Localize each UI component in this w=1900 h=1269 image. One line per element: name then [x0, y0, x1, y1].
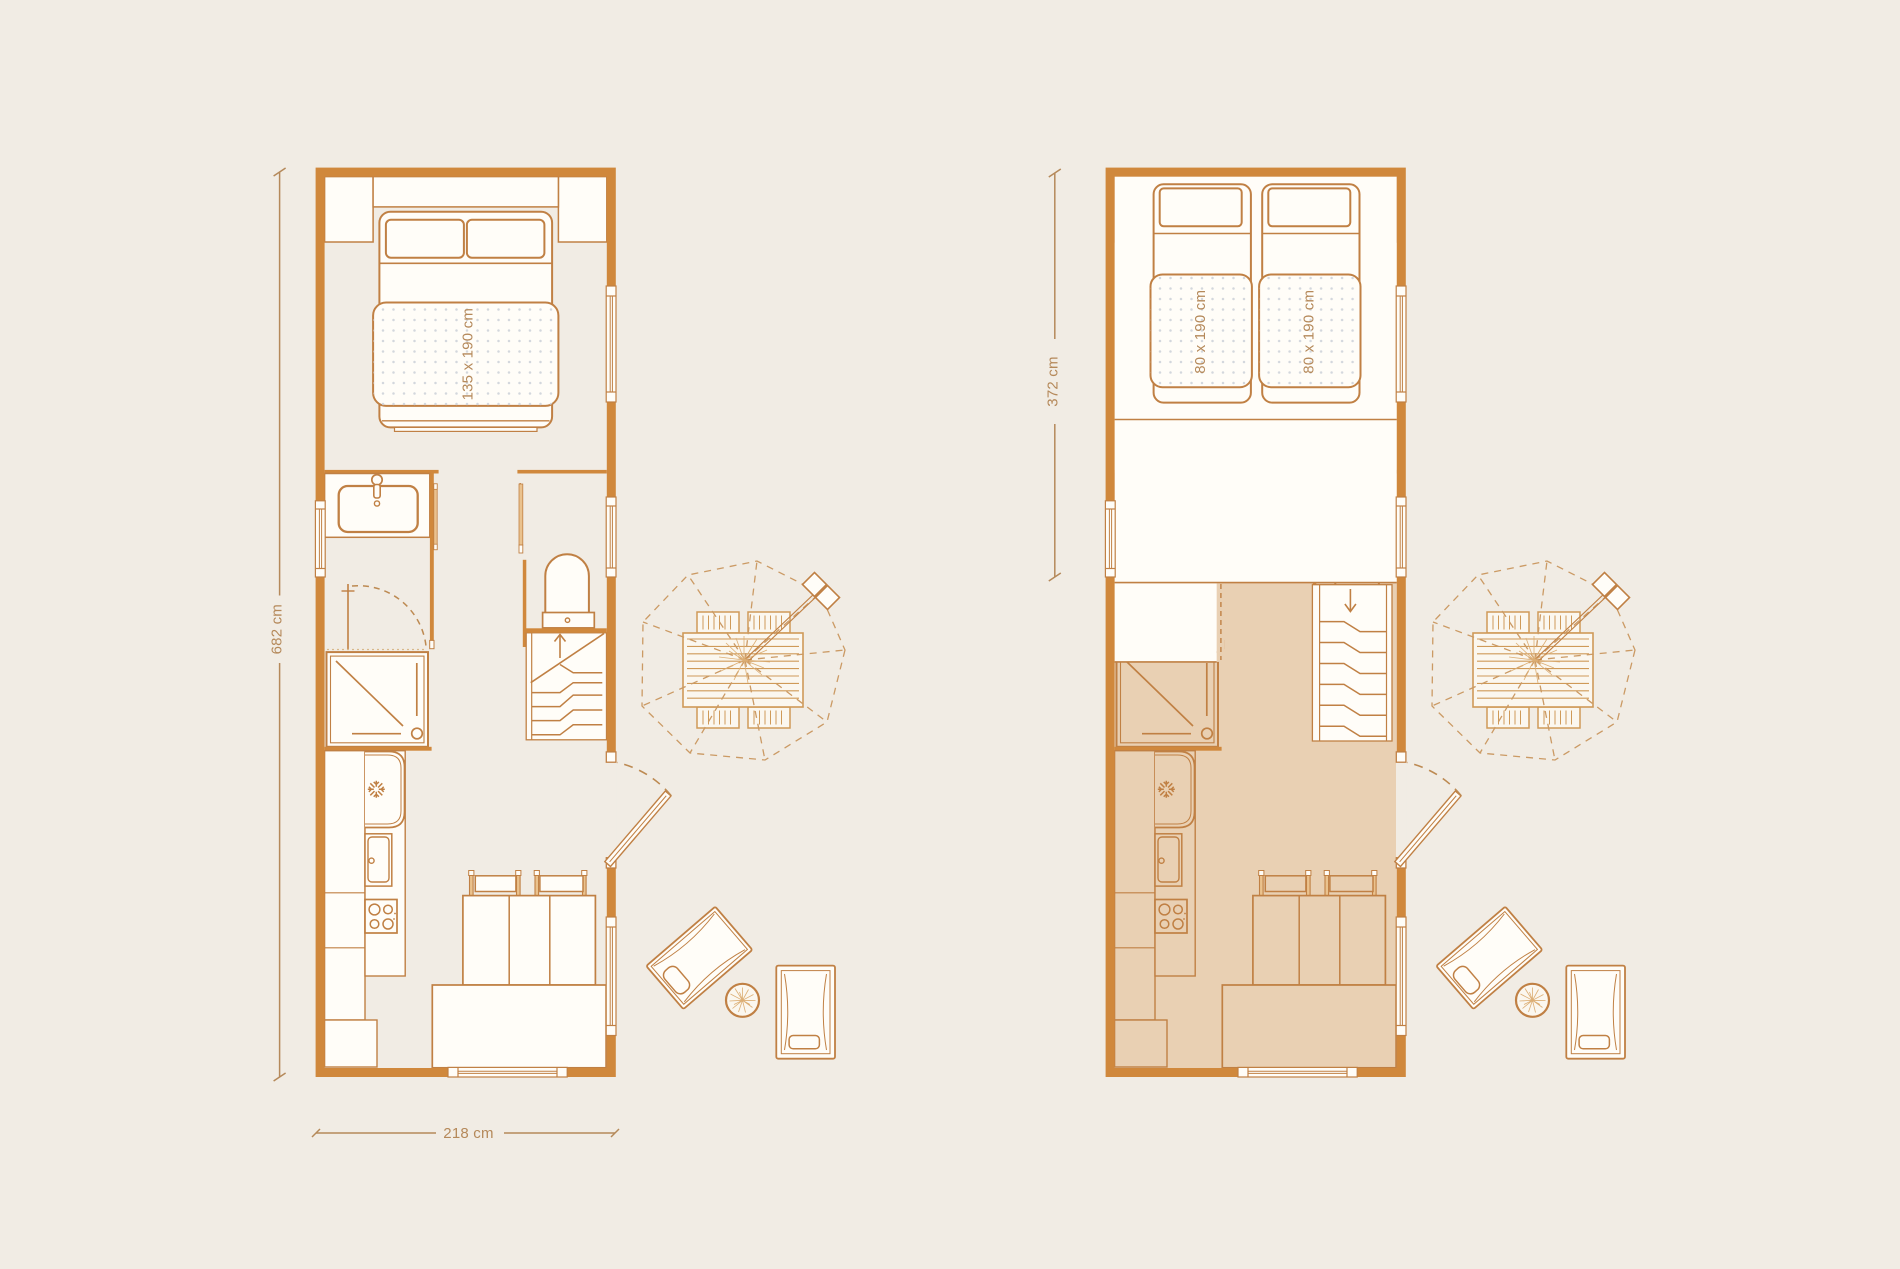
svg-text:80 x 190 cm: 80 x 190 cm — [1192, 290, 1209, 374]
svg-text:682 cm: 682 cm — [269, 604, 286, 654]
svg-text:372 cm: 372 cm — [1045, 356, 1062, 406]
svg-text:218 cm: 218 cm — [443, 1125, 493, 1142]
svg-text:135 x 190 cm: 135 x 190 cm — [460, 308, 477, 400]
